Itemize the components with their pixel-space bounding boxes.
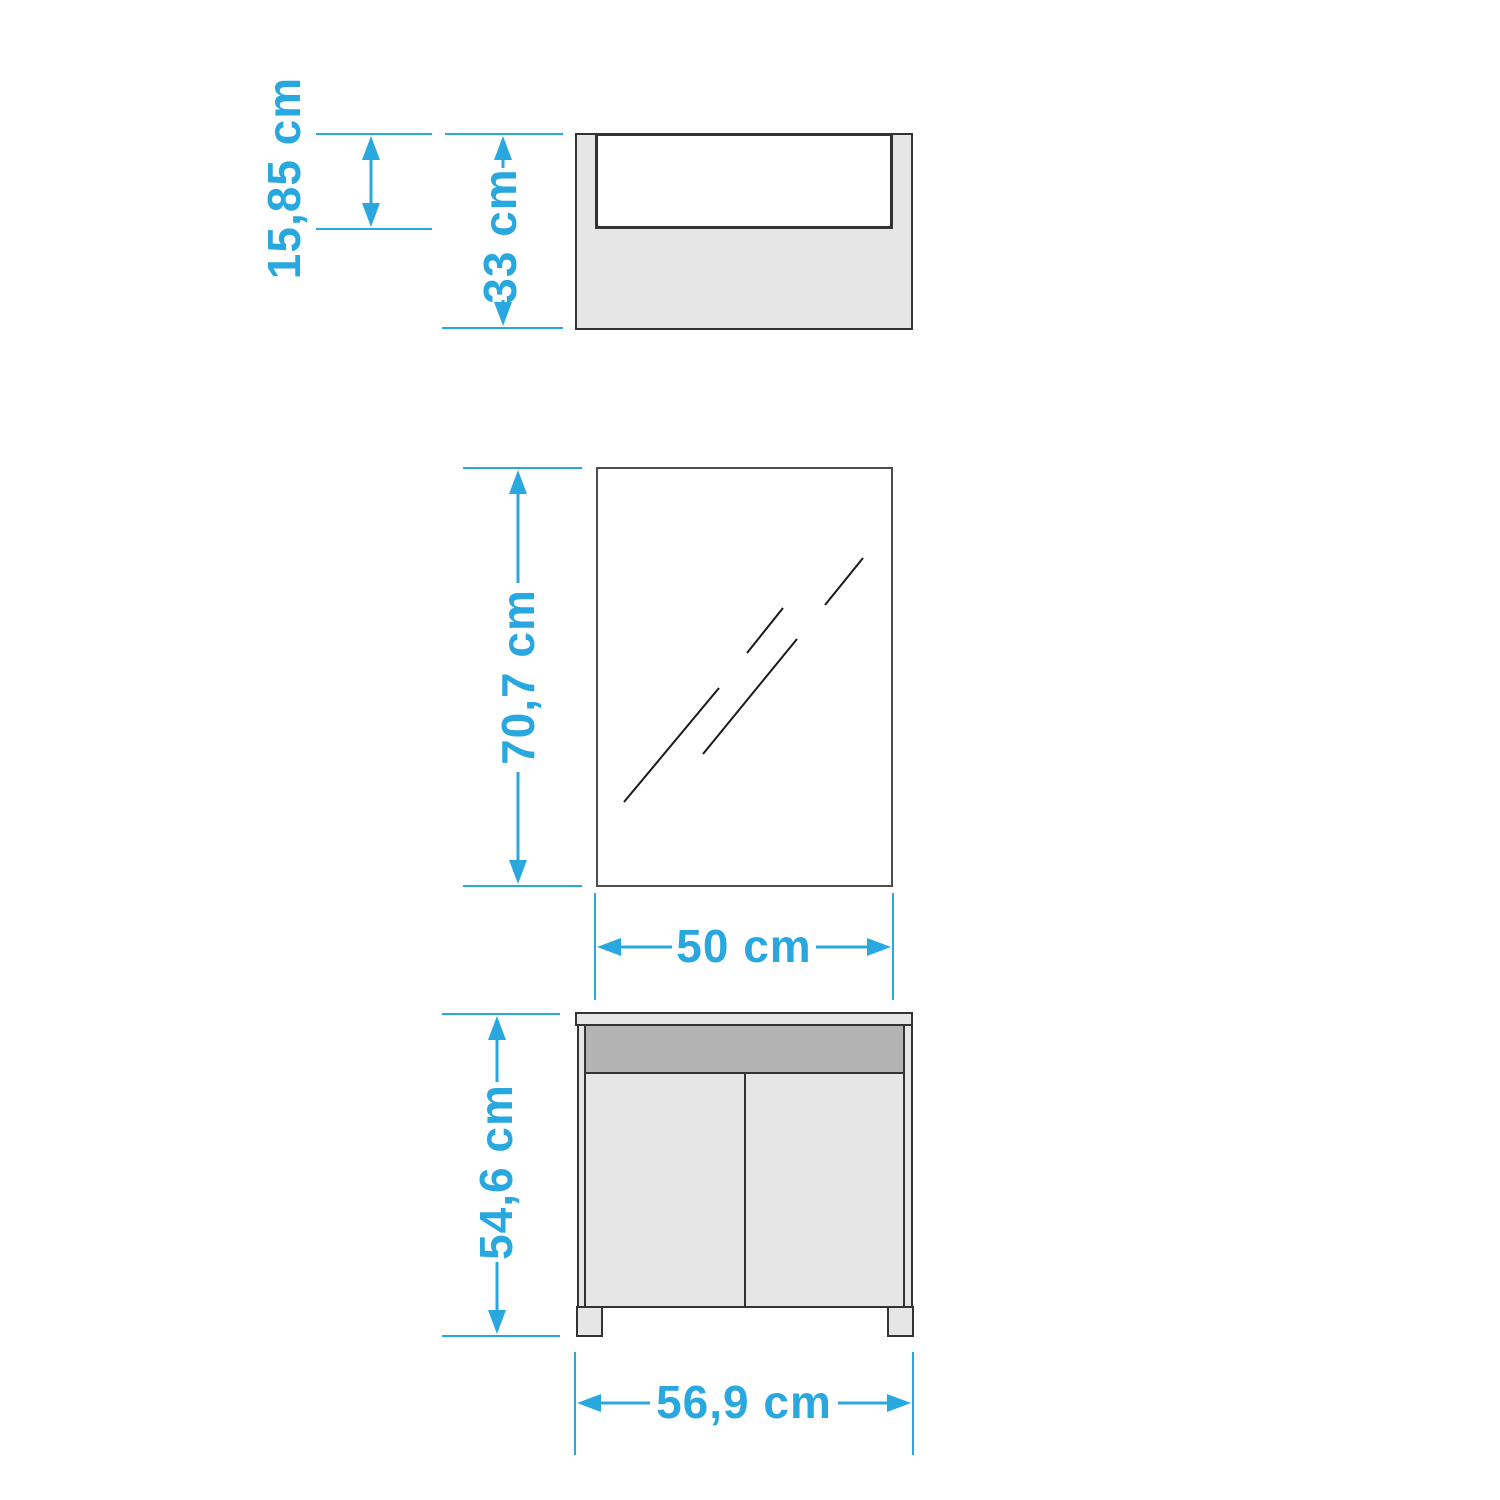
arrowhead-down [362, 203, 380, 227]
technical-drawing: 15,85 cm 33 cm 70,7 cm 50 cm 54,6 cm 56,… [0, 0, 1500, 1500]
dimension-label-vanity-width: 56,9 cm [656, 1375, 832, 1429]
vanity-door-right [744, 1072, 905, 1308]
arrowhead-up [488, 1016, 506, 1040]
mirror-body [596, 467, 893, 887]
vanity-foot-right [887, 1306, 914, 1337]
shelf-opening [595, 133, 893, 229]
vanity-side-panel-left [577, 1024, 586, 1308]
dimension-label-shelf-height: 33 cm [473, 168, 527, 303]
vanity-door-left [584, 1072, 746, 1308]
arrowhead-left [577, 1394, 601, 1412]
dimension-label-shelf-opening-height: 15,85 cm [257, 77, 311, 279]
vanity-foot-left [576, 1306, 603, 1337]
arrowhead-up [494, 136, 512, 160]
arrowhead-up [509, 470, 527, 494]
arrowhead-left [597, 938, 621, 956]
arrowhead-down [488, 1310, 506, 1334]
arrowhead-down [509, 860, 527, 884]
dimension-label-vanity-height: 54,6 cm [469, 1084, 523, 1260]
vanity-drawer-band [584, 1024, 905, 1074]
dimension-shelf-opening-height [316, 134, 432, 229]
vanity-side-panel-right [903, 1024, 913, 1308]
arrowhead-down [494, 302, 512, 326]
dimension-label-mirror-width: 50 cm [676, 919, 811, 973]
dimension-label-mirror-height: 70,7 cm [491, 589, 545, 765]
arrowhead-right [867, 938, 891, 956]
arrowhead-right [887, 1394, 911, 1412]
arrowhead-up [362, 136, 380, 160]
